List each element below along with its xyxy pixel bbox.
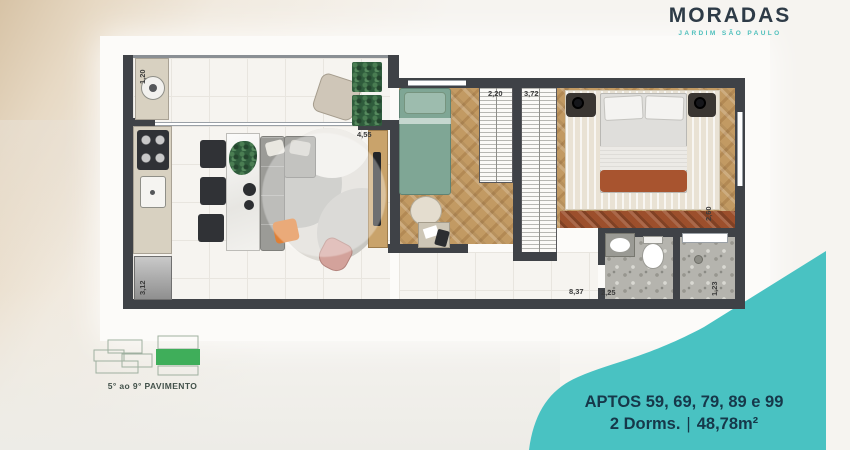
wall-lamp-icon [694, 97, 706, 109]
closet-bedroom2 [521, 87, 557, 261]
dim-closet2: 3,72 [524, 89, 539, 98]
dim-bath-width: 2,25 [601, 288, 616, 297]
dining-chair [198, 214, 224, 242]
service-room-floor [680, 237, 735, 299]
table-setting [244, 200, 254, 210]
wall-segment [513, 85, 521, 261]
dim-service-width: 1,20 [138, 69, 147, 84]
logo-watermark [262, 133, 386, 257]
dining-chair [200, 177, 226, 205]
dim-total-width: 8,37 [569, 287, 584, 296]
floorplan-poster: MORADAS JARDIM SÃO PAULO APTOS 59, 69, 7… [0, 0, 850, 450]
bedroom2-window [737, 112, 743, 186]
toilet-bowl [642, 243, 664, 269]
floor-drain-icon [694, 255, 703, 264]
bed-bench [600, 170, 687, 192]
wall-lamp-icon [572, 97, 584, 109]
planter-box [352, 95, 382, 126]
dim-service-area: 1,23 [710, 281, 719, 296]
sink-drain-icon [150, 190, 155, 195]
tank-drain-icon [149, 84, 157, 92]
bath-sink [609, 237, 631, 253]
closet-divider-line [539, 88, 540, 260]
bedroom1-window [408, 80, 466, 86]
bed-fold [399, 118, 451, 124]
closet-bedroom1 [479, 87, 513, 183]
bed-pillow [404, 92, 446, 114]
stove-cooktop [137, 130, 169, 170]
bed-pillow [645, 95, 685, 120]
bed-pillow [603, 95, 643, 121]
dim-kitchen-depth: 3,12 [138, 280, 147, 295]
wall-segment [123, 299, 745, 309]
dining-chair [200, 140, 226, 168]
dim-closet1: 2,20 [488, 89, 503, 98]
balcony-glass-rail [133, 55, 391, 58]
wall-segment [673, 237, 680, 302]
planter-box [352, 62, 382, 92]
closet-divider-line [496, 88, 497, 182]
wall-segment [513, 252, 557, 261]
wall-segment [598, 237, 605, 265]
wall-segment [123, 55, 133, 309]
floorplan: 1,20 4,55 2,20 3,72 2,60 1,23 8,37 2,25 … [0, 0, 850, 450]
balcony-sliding-door [152, 122, 358, 126]
service-shelf [682, 233, 728, 243]
table-setting [243, 183, 256, 196]
dim-living-width: 4,55 [357, 130, 372, 139]
dim-suite-side: 2,60 [704, 206, 713, 221]
bed-blanket [600, 146, 687, 170]
